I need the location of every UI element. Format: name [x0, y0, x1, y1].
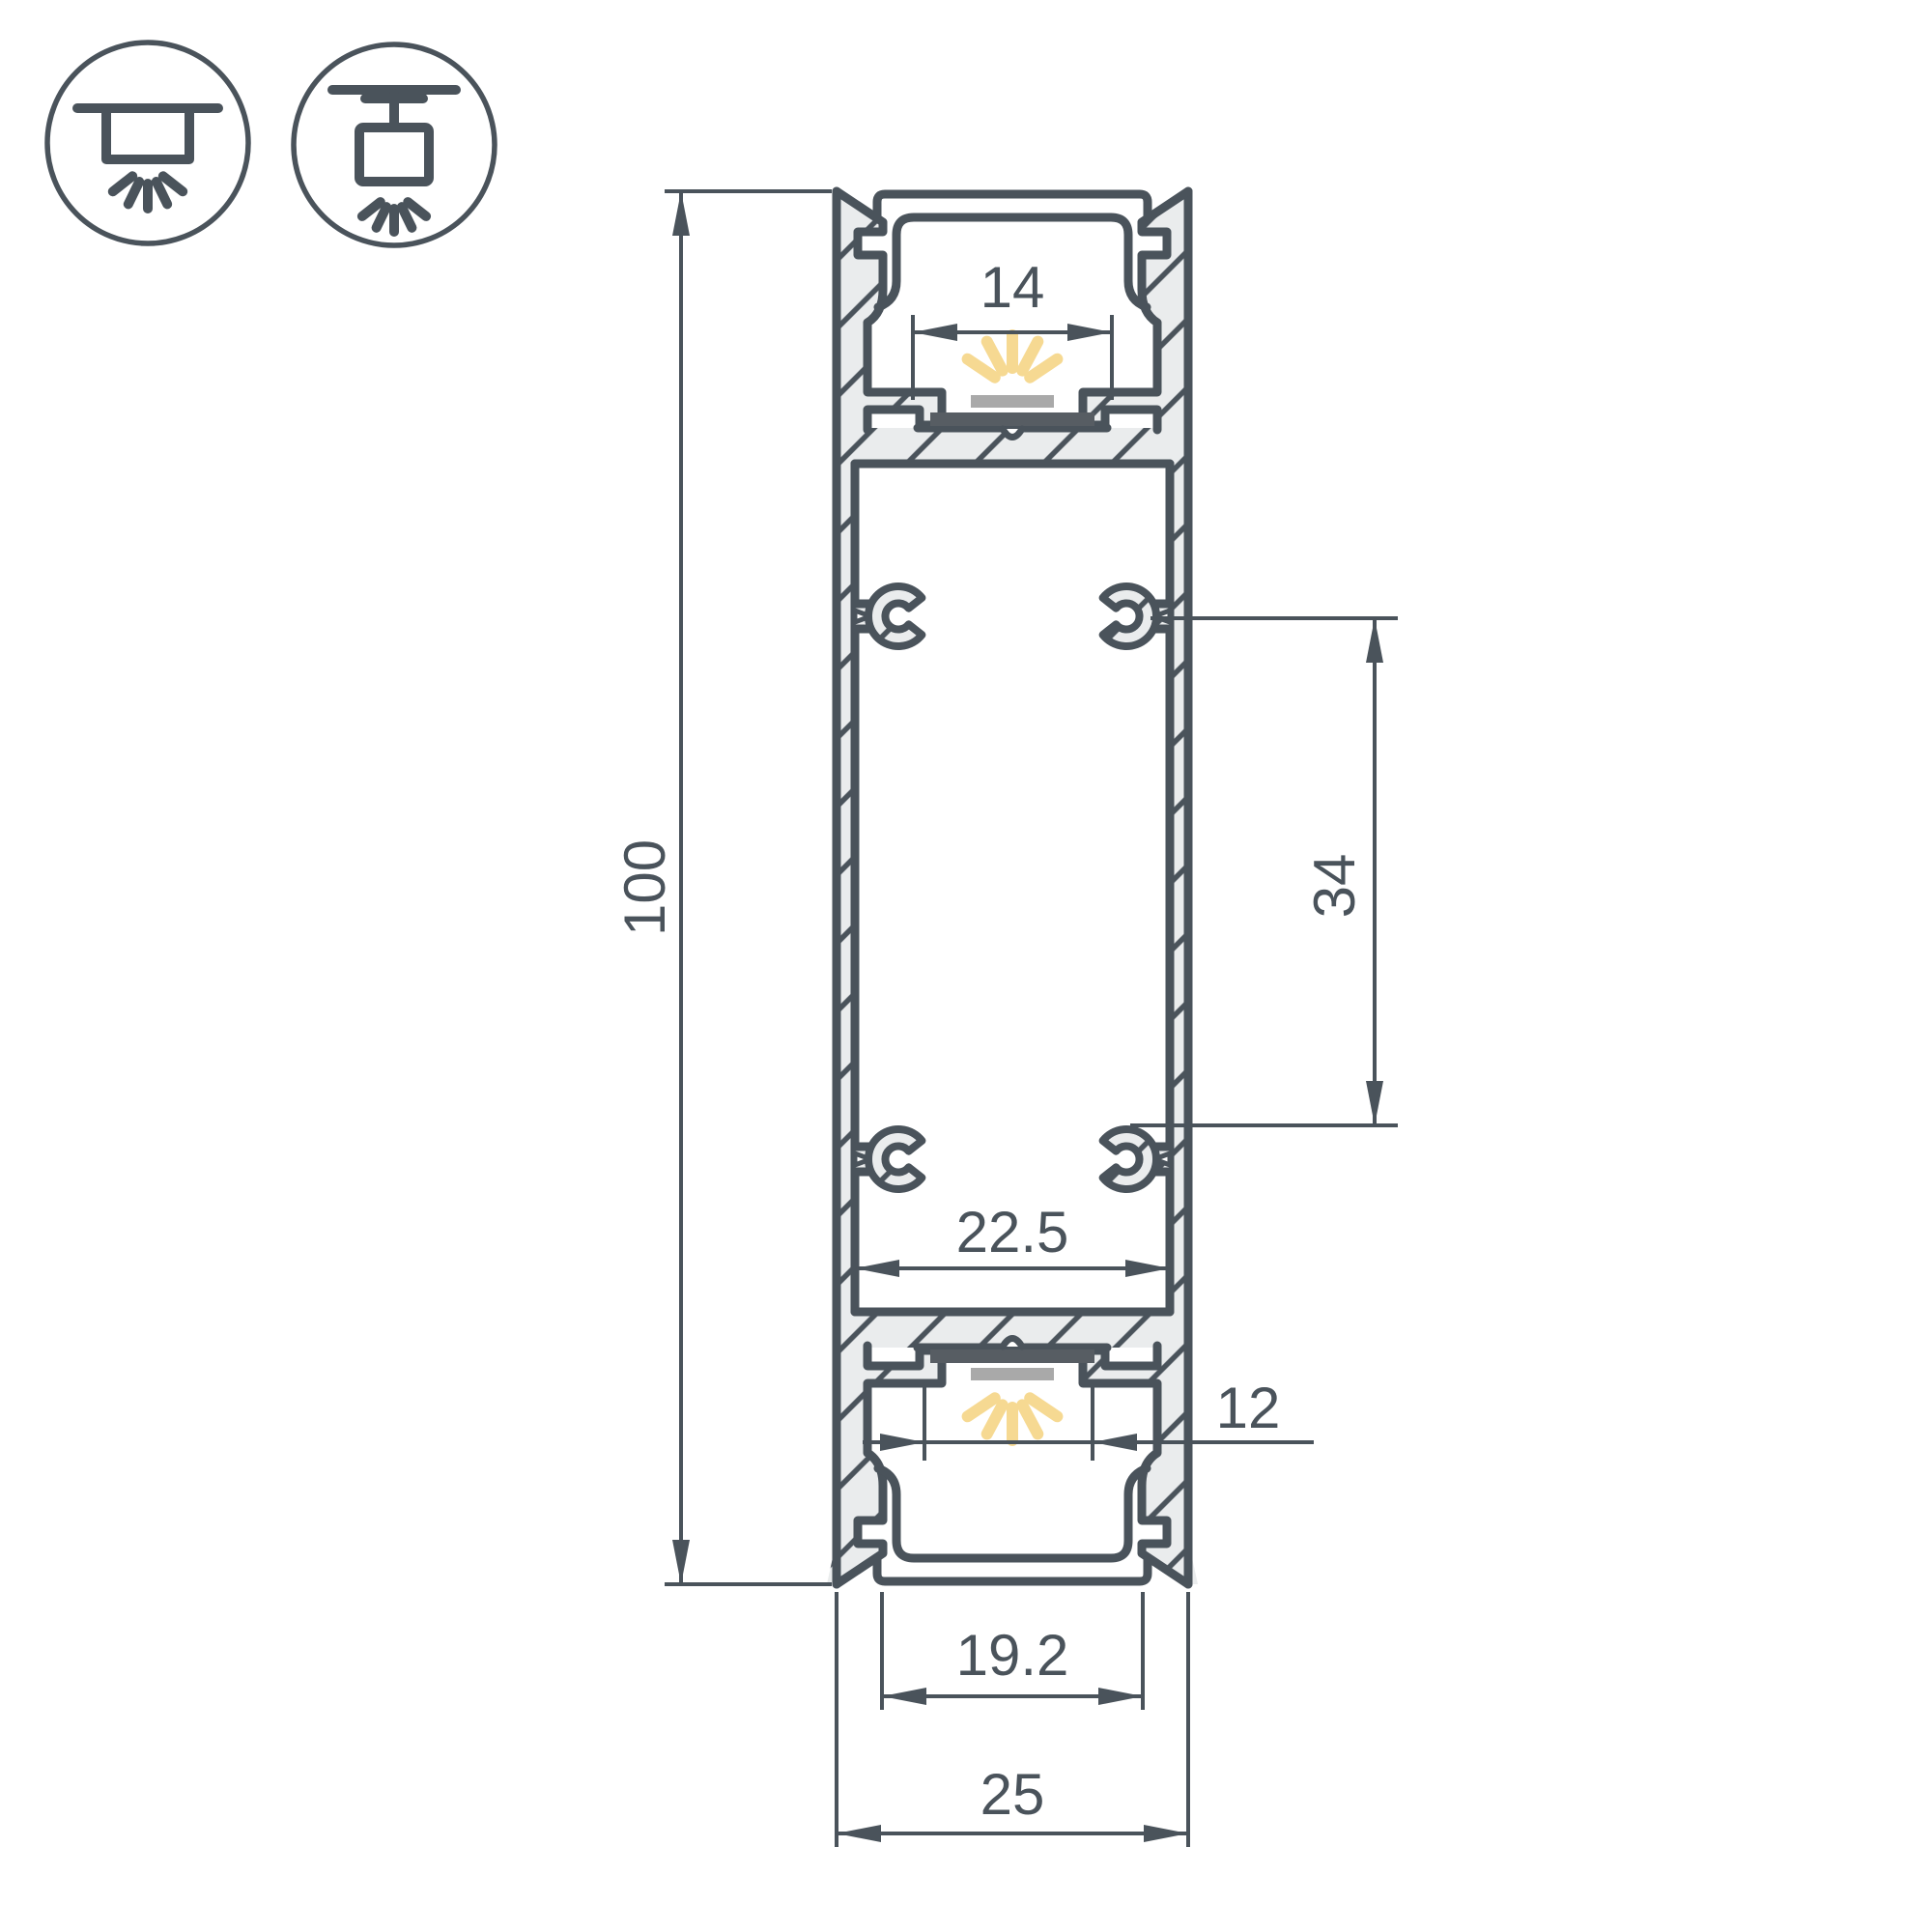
- dim-label-19.2: 19.2: [956, 1623, 1069, 1688]
- dim-label-34: 34: [1302, 854, 1367, 919]
- suspended-pendant-mount-icon: [294, 44, 495, 245]
- screw-pilot-mark: [1003, 1339, 1022, 1348]
- dim-bottom-opening: 19.2: [882, 1592, 1143, 1710]
- screw-boss-lower-right: [1103, 1129, 1156, 1189]
- dim-label-12: 12: [1216, 1376, 1281, 1440]
- led-strip: [971, 395, 1054, 408]
- recessed-ceiling-mount-icon: [47, 43, 248, 243]
- dim-top-window: 14: [913, 255, 1112, 400]
- screw-pilot-mark: [1003, 429, 1022, 438]
- bottom-cover-inner: [878, 1468, 1147, 1558]
- profile-box: [106, 108, 189, 159]
- light-rays: [113, 176, 183, 209]
- light-rays: [362, 202, 426, 232]
- led-strip: [971, 1368, 1054, 1380]
- led-tape: [930, 1350, 1094, 1363]
- dim-bottom-window: 12: [863, 1376, 1314, 1461]
- technical-drawing-page: 100 14 34 22.5 12: [0, 0, 1932, 1932]
- dim-label-25: 25: [980, 1762, 1045, 1827]
- dim-inner-width: 22.5: [855, 1200, 1170, 1277]
- dim-overall-height: 100: [612, 191, 832, 1584]
- profile-box: [359, 128, 429, 182]
- light-glow-down: [968, 1398, 1058, 1440]
- profile-dimension-drawing: 100 14 34 22.5 12: [0, 0, 1932, 1932]
- screw-boss-upper-right: [1103, 586, 1156, 646]
- screw-boss-lower-left: [868, 1129, 922, 1189]
- dim-label-14: 14: [980, 255, 1045, 320]
- light-glow-up: [968, 335, 1058, 378]
- led-tape: [930, 412, 1094, 426]
- screw-boss-upper-left: [868, 586, 922, 646]
- dim-label-100: 100: [612, 839, 677, 936]
- dim-label-22.5: 22.5: [956, 1200, 1069, 1264]
- profile-cross-section: [827, 191, 1198, 1584]
- screw-bosses: [855, 586, 1170, 1189]
